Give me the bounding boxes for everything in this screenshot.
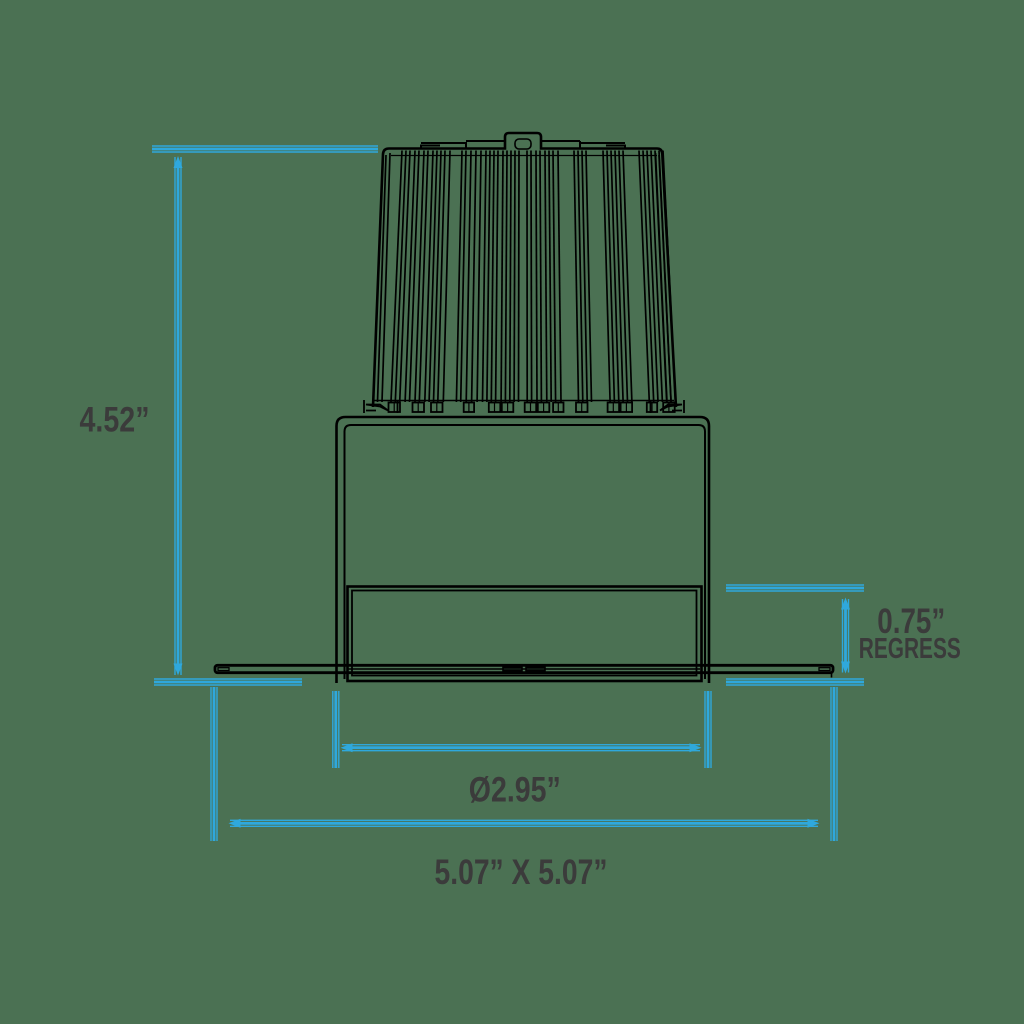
svg-text:4.52”: 4.52” [80,401,150,440]
svg-text:REGRESS: REGRESS [859,633,961,665]
svg-text:5.07” X 5.07”: 5.07” X 5.07” [435,853,608,892]
svg-text:Ø2.95”: Ø2.95” [469,770,561,809]
